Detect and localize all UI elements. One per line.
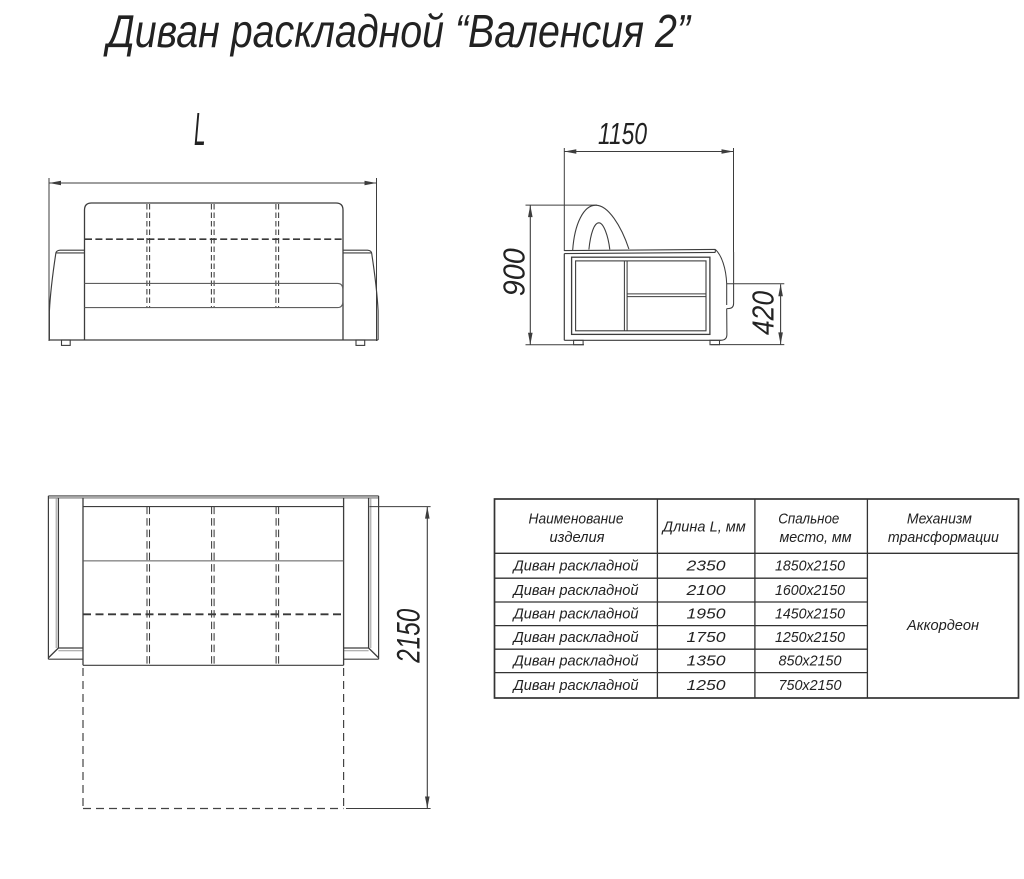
svg-text:Спальное: Спальное (778, 511, 839, 528)
svg-text:Длина L, мм: Длина L, мм (661, 519, 746, 536)
svg-text:1750: 1750 (687, 629, 727, 646)
svg-text:1600x2150: 1600x2150 (775, 582, 846, 599)
svg-text:Диван раскладной: Диван раскладной (512, 606, 640, 623)
svg-text:Диван раскладной “Валенсия 2”: Диван раскладной “Валенсия 2” (103, 5, 693, 57)
svg-text:1450x2150: 1450x2150 (775, 606, 846, 623)
svg-text:место, мм: место, мм (780, 529, 852, 546)
svg-text:1850x2150: 1850x2150 (775, 558, 846, 575)
svg-text:изделия: изделия (550, 529, 605, 546)
svg-text:Наименование: Наименование (529, 511, 624, 528)
svg-text:900: 900 (497, 248, 532, 296)
svg-text:1350: 1350 (687, 653, 727, 670)
svg-text:Аккордеон: Аккордеон (906, 617, 979, 634)
svg-text:2350: 2350 (685, 558, 726, 575)
svg-text:1250: 1250 (687, 677, 727, 694)
svg-text:Механизм: Механизм (907, 511, 972, 528)
svg-text:1950: 1950 (687, 606, 727, 623)
svg-text:трансформации: трансформации (888, 529, 1000, 546)
svg-text:850x2150: 850x2150 (779, 653, 843, 670)
svg-text:Диван раскладной: Диван раскладной (512, 558, 640, 575)
svg-text:750x2150: 750x2150 (779, 677, 843, 694)
svg-text:Диван раскладной: Диван раскладной (512, 653, 640, 670)
svg-text:420: 420 (746, 291, 781, 335)
svg-text:2150: 2150 (391, 609, 427, 664)
svg-text:Диван раскладной: Диван раскладной (512, 677, 640, 694)
svg-text:L: L (194, 103, 206, 155)
svg-text:1150: 1150 (598, 116, 647, 151)
svg-text:2100: 2100 (685, 582, 726, 599)
svg-text:1250x2150: 1250x2150 (775, 629, 846, 646)
svg-text:Диван раскладной: Диван раскладной (512, 629, 640, 646)
svg-text:Диван раскладной: Диван раскладной (512, 582, 640, 599)
